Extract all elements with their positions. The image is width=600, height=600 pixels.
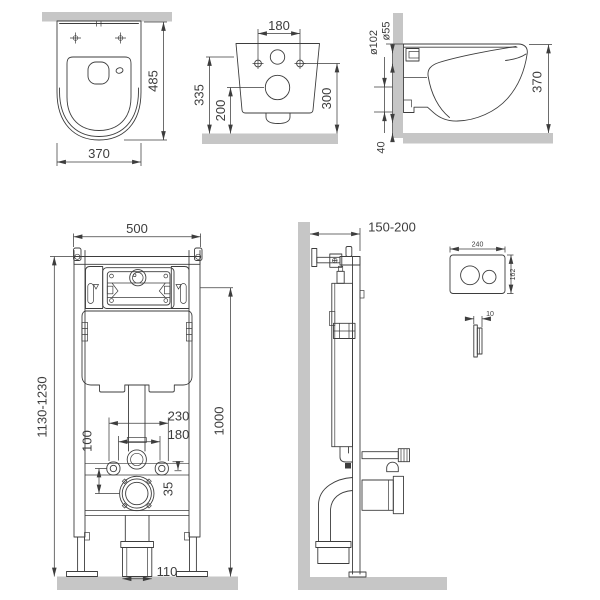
- dim-depth-485: 485: [146, 70, 161, 92]
- fill-valve-cap: [337, 271, 344, 283]
- technical-drawing-sheet: 485 370 180 335 200 300: [0, 0, 600, 600]
- dim-height-370: 370: [530, 71, 545, 93]
- foot-right: [190, 537, 197, 572]
- dim-plate-width-240: 240: [472, 242, 484, 249]
- wall-bar: [42, 12, 172, 22]
- wall-bar: [298, 222, 310, 590]
- foot-plate-right: [177, 572, 208, 577]
- trap-tab: [266, 113, 290, 124]
- inlet-hole: [270, 50, 284, 64]
- flush-opening: [88, 62, 109, 84]
- floor-bar: [298, 577, 447, 590]
- drain-elbow-box: [318, 548, 349, 564]
- drawing-canvas: 485 370 180 335 200 300: [0, 0, 600, 600]
- drain-box-flange: [121, 542, 154, 548]
- flush-plate-view: 240 162 10: [450, 242, 517, 358]
- frame-post: [353, 257, 361, 575]
- wall-bracket-plate: [312, 249, 317, 267]
- plate-profile-face: [474, 325, 478, 357]
- frame-side-view: 150-200: [298, 220, 447, 591]
- dim-floor-gap-40: 40: [376, 141, 388, 153]
- seat-fixing-cross-left: [70, 33, 126, 44]
- dim-width-370: 370: [88, 146, 110, 161]
- dim-reference-height-1000: 1000: [212, 407, 227, 436]
- toilet-body-outline: [57, 21, 141, 140]
- flush-plate: [450, 255, 505, 294]
- frame-front-view: 500 1130-1230 1000 230 180 100 35 110: [35, 221, 239, 590]
- inlet-socket: [406, 49, 419, 62]
- top-crossbar: [74, 257, 200, 265]
- toilet-side-view: ø55 ø102 40 370: [368, 13, 553, 154]
- flush-button-large: [461, 266, 480, 285]
- inlet-elbow: [127, 450, 146, 469]
- foot-left: [78, 537, 85, 572]
- frame-rails: [74, 251, 200, 538]
- dim-install-height: 1130-1230: [35, 376, 50, 437]
- dim-bolt-height-300: 300: [319, 88, 334, 110]
- dim-outlet-height-200: 200: [213, 100, 228, 122]
- pipe-clamp: [345, 463, 351, 469]
- outlet-hole: [265, 75, 289, 99]
- outlet-flange: [120, 476, 154, 510]
- access-window: [103, 268, 174, 309]
- dim-plate-thickness-10: 10: [486, 311, 494, 318]
- hanger-tab: [346, 247, 352, 257]
- dim-bolt-spacing-180: 180: [268, 18, 290, 33]
- floor-bar: [202, 134, 338, 145]
- floor-bar: [403, 133, 553, 144]
- water-supply-pipe: [362, 452, 398, 459]
- jet-hole: [115, 67, 123, 74]
- drain-elbow: [319, 478, 353, 542]
- toilet-back-view: 180 335 200 300: [192, 18, 341, 144]
- dim-rod-spacing-230: 230: [168, 409, 190, 424]
- dim-outlet-drop-100: 100: [80, 430, 95, 452]
- dim-offset-35: 35: [161, 482, 176, 496]
- rod-plate-right: [155, 462, 168, 475]
- cistern: [82, 311, 192, 392]
- wall-bar: [393, 13, 403, 138]
- dim-drain-width-110: 110: [157, 564, 178, 579]
- toilet-top-view: 485 370: [42, 12, 172, 166]
- flush-pipe: [129, 385, 146, 451]
- dim-outlet-diameter: ø102: [368, 30, 380, 55]
- outlet-connector-flange: [393, 476, 403, 513]
- post-foot-plate: [349, 572, 366, 577]
- foot-plate-left: [67, 572, 98, 577]
- drain-elbow-flange: [316, 542, 351, 548]
- flush-button-small: [483, 270, 496, 283]
- bowl-inner-curve: [428, 47, 516, 118]
- drain-pipe: [125, 516, 149, 542]
- dim-inlet-diameter: ø55: [381, 22, 393, 41]
- dim-pipe-spacing-180: 180: [168, 427, 190, 442]
- crossbar-end: [340, 257, 360, 266]
- level-marks: [94, 285, 182, 290]
- dim-plate-height-162: 162: [510, 269, 517, 281]
- rod-plate-left: [107, 462, 120, 475]
- dim-frame-width-500: 500: [126, 221, 148, 236]
- toilet-back-outline: [236, 44, 320, 114]
- dim-inlet-height-335: 335: [192, 84, 207, 106]
- supply-valve-cap: [387, 462, 399, 472]
- dim-wall-distance: 150-200: [368, 220, 416, 235]
